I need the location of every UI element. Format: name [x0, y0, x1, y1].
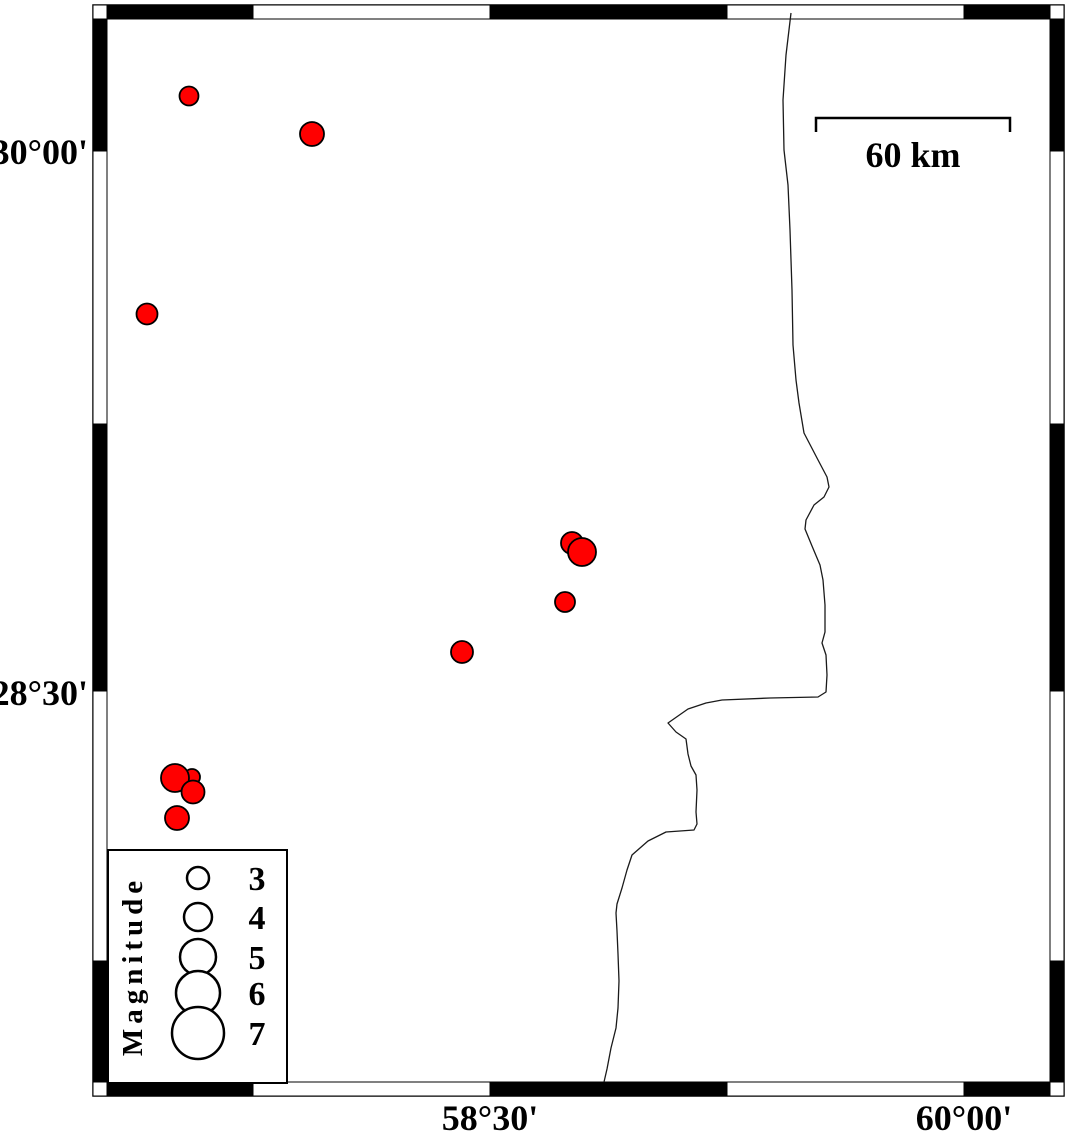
earthquake-marker: [555, 592, 575, 612]
legend: Magnitude 34567: [108, 850, 287, 1083]
frame-segment-left: [93, 424, 107, 691]
frame-segment-left: [93, 151, 107, 424]
frame-segment-bottom: [490, 1082, 727, 1096]
lon-label: 58°30': [442, 1098, 538, 1134]
frame-corner: [1050, 1082, 1064, 1096]
legend-magnitude-circle: [187, 867, 209, 889]
earthquake-marker: [180, 87, 199, 106]
legend-magnitude-circle: [172, 1007, 224, 1059]
frame-segment-top: [490, 5, 727, 19]
earthquake-marker: [165, 806, 189, 830]
frame-segment-right: [1050, 691, 1064, 961]
earthquake-marker: [568, 538, 596, 566]
frame-segment-left: [93, 961, 107, 1082]
earthquake-marker: [137, 304, 158, 325]
frame-segment-right: [1050, 961, 1064, 1082]
frame-segment-right: [1050, 19, 1064, 151]
frame-segment-left: [93, 691, 107, 961]
earthquake-marker: [182, 781, 205, 804]
legend-magnitude-value: 4: [249, 900, 266, 937]
frame-segment-top: [964, 5, 1050, 19]
frame-segment-top: [107, 5, 253, 19]
frame-segment-top: [727, 5, 964, 19]
legend-title: Magnitude: [117, 876, 149, 1056]
lon-label: 60°00': [916, 1098, 1012, 1134]
earthquake-marker: [451, 641, 473, 663]
lat-label: 30°00': [0, 132, 88, 172]
scale-bar-label: 60 km: [865, 135, 960, 175]
earthquake-marker: [300, 122, 324, 146]
frame-segment-bottom: [727, 1082, 964, 1096]
frame-segment-bottom: [964, 1082, 1050, 1096]
frame-corner: [93, 5, 107, 19]
frame-corner: [93, 1082, 107, 1096]
legend-magnitude-value: 3: [249, 861, 266, 898]
frame-segment-bottom: [253, 1082, 490, 1096]
legend-magnitude-value: 6: [249, 976, 266, 1013]
legend-magnitude-value: 5: [249, 940, 266, 977]
seismicity-map: 30°00'28°30'58°30'60°00' 60 km Magnitude…: [0, 0, 1066, 1134]
frame-segment-left: [93, 19, 107, 151]
lat-label: 28°30': [0, 673, 88, 713]
frame-segment-right: [1050, 151, 1064, 424]
legend-magnitude-circle: [180, 939, 216, 975]
legend-magnitude-circle: [184, 903, 212, 931]
frame-corner: [1050, 5, 1064, 19]
legend-magnitude-value: 7: [249, 1016, 266, 1053]
frame-segment-right: [1050, 424, 1064, 691]
frame-segment-bottom: [107, 1082, 253, 1096]
frame-segment-top: [253, 5, 490, 19]
